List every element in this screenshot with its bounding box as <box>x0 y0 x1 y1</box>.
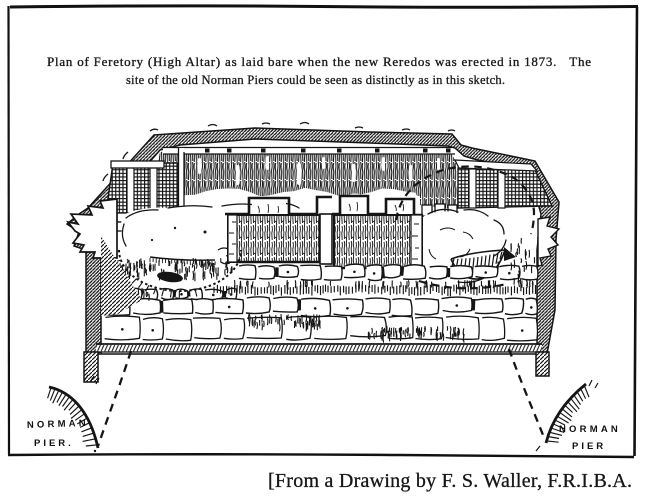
svg-text:NORMAN: NORMAN <box>27 418 89 431</box>
svg-text:[From a Drawing by F. S. Walle: [From a Drawing by F. S. Waller, F.R.I.B… <box>268 470 632 492</box>
svg-text:site of the old Norman Piers c: site of the old Norman Piers could be se… <box>126 73 505 87</box>
svg-text:Plan of Feretory (High Altar): Plan of Feretory (High Altar) as laid ba… <box>47 54 591 69</box>
svg-text:PIER: PIER <box>572 441 606 452</box>
svg-text:NORMAN: NORMAN <box>559 424 621 435</box>
svg-text:PIER.: PIER. <box>34 438 74 449</box>
